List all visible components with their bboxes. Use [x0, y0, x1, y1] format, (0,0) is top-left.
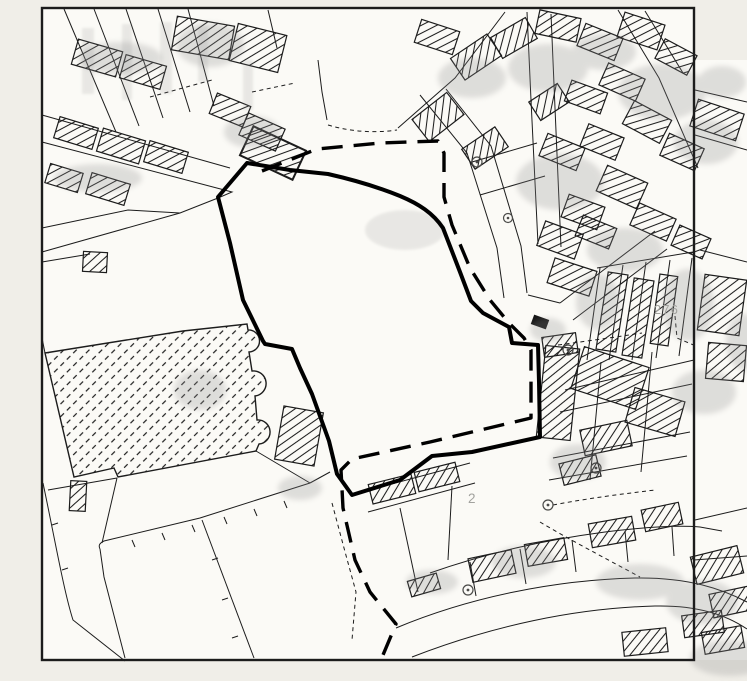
church-building [45, 324, 270, 477]
parcel-label-276: 276 [654, 303, 679, 317]
parcel-label-2: 2 [468, 491, 477, 506]
cadastral-map: 276 2 [0, 0, 747, 681]
cadastral-map-scan: 276 2 [0, 0, 747, 681]
